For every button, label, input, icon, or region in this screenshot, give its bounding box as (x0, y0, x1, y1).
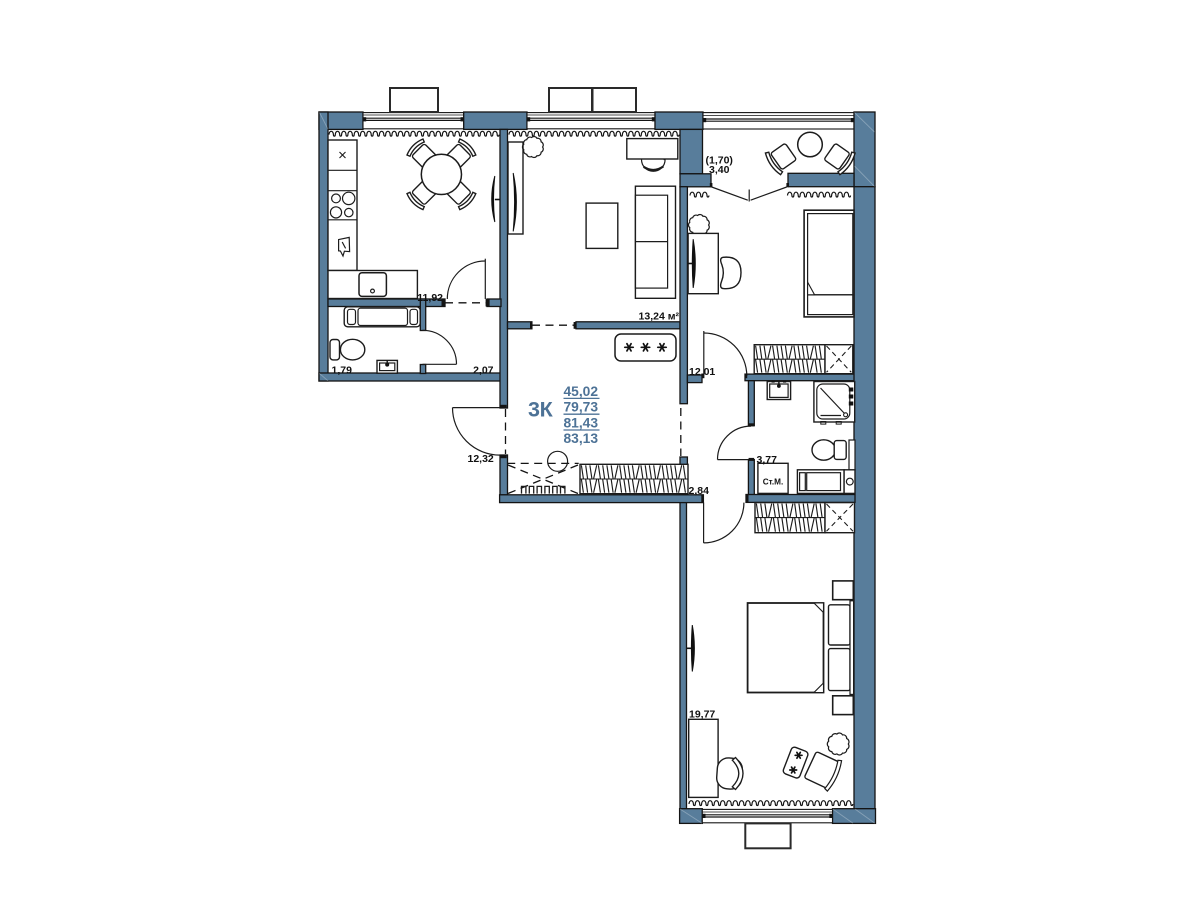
svg-text:45,02: 45,02 (564, 384, 599, 399)
svg-text:83,13: 83,13 (564, 431, 599, 446)
svg-text:3,40: 3,40 (709, 164, 730, 176)
svg-text:19,77: 19,77 (689, 709, 715, 721)
svg-text:79,73: 79,73 (564, 400, 599, 415)
svg-text:2,84: 2,84 (689, 485, 710, 497)
svg-text:3К: 3К (528, 398, 554, 422)
svg-text:1,79: 1,79 (332, 365, 353, 377)
svg-text:12,32: 12,32 (468, 453, 494, 465)
svg-text:13,24 м²: 13,24 м² (639, 311, 680, 323)
svg-text:81,43: 81,43 (564, 415, 599, 430)
svg-text:12,01: 12,01 (689, 366, 715, 378)
svg-text:11,92: 11,92 (417, 292, 443, 304)
svg-text:Ст.М.: Ст.М. (763, 478, 784, 487)
svg-text:2,07: 2,07 (473, 365, 494, 377)
svg-text:3,77: 3,77 (757, 454, 778, 466)
